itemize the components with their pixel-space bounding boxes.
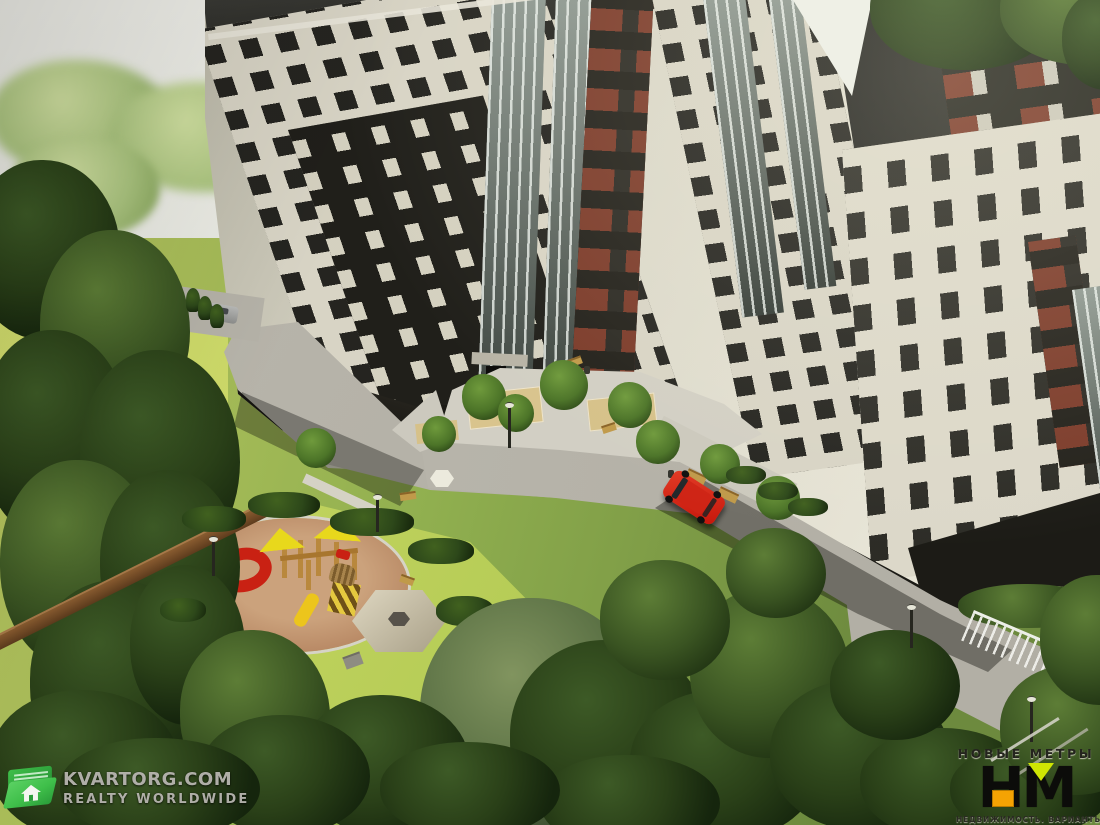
bush xyxy=(330,508,414,536)
tree xyxy=(600,560,730,680)
street-lamp-pole xyxy=(508,406,511,448)
aerial-render-photo: KVARTORG.COM REALTY WORLDWIDE НОВЫЕ МЕТР… xyxy=(0,0,1100,825)
courtyard-tree xyxy=(296,428,336,468)
bush xyxy=(758,482,798,500)
bush xyxy=(726,466,766,484)
kvartorg-tagline-text: REALTY WORLDWIDE xyxy=(63,793,249,806)
tree xyxy=(830,630,960,740)
kvartorg-folder-icon xyxy=(6,765,54,810)
novye-metry-logo: НОВЫЕ МЕТРЫ Н М НЕДВИЖИМОСТЬ. ВАРИАНТЫ. xyxy=(956,746,1096,824)
kvartorg-brand-text: KVARTORG.COM xyxy=(63,771,249,789)
monogram-letter-m: М xyxy=(1022,767,1075,812)
house-door xyxy=(29,795,33,801)
street-lamp-pole xyxy=(376,498,379,532)
street-lamp-head xyxy=(907,604,916,610)
street-lamp-head xyxy=(505,402,514,408)
courtyard-tree xyxy=(498,394,534,432)
play-post xyxy=(306,560,311,590)
monogram-orange-block xyxy=(992,790,1014,807)
bush xyxy=(182,506,246,532)
street-lamp-pole xyxy=(212,540,215,576)
street-lamp-pole xyxy=(910,608,913,648)
house-icon xyxy=(21,784,41,802)
kvartorg-watermark: KVARTORG.COM REALTY WORLDWIDE xyxy=(6,768,249,808)
bush xyxy=(788,498,828,516)
courtyard-tree xyxy=(636,420,680,464)
courtyard-tree xyxy=(540,360,588,410)
street-lamp-head xyxy=(209,536,218,542)
street-lamp-head xyxy=(373,494,382,500)
tree xyxy=(726,528,826,618)
courtyard-tree xyxy=(608,382,652,428)
bush xyxy=(408,538,474,564)
courtyard-tree xyxy=(422,416,456,452)
nm-monogram: Н М xyxy=(956,762,1096,812)
street-lamp-head xyxy=(1027,696,1036,702)
bush xyxy=(248,492,320,518)
cypress xyxy=(210,304,224,328)
bush xyxy=(160,598,206,622)
play-post xyxy=(282,548,287,578)
